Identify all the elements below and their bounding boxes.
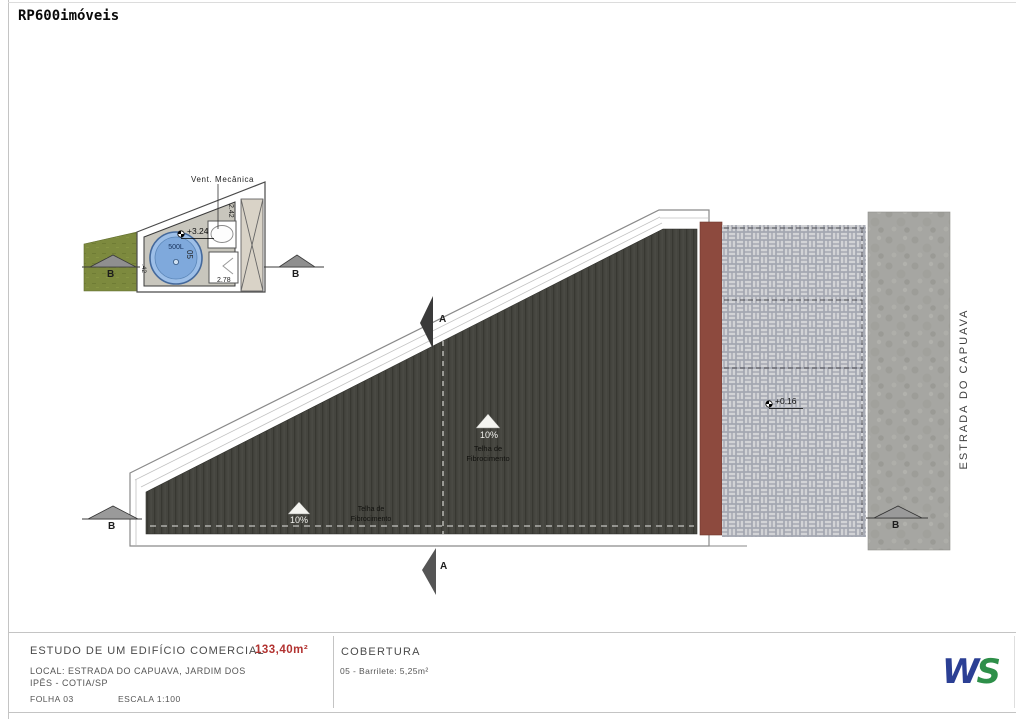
firm-logo-w: W (942, 652, 977, 692)
site-plan-drawing (0, 0, 1024, 719)
water-tank-cap (173, 259, 178, 264)
room-number: 05 (185, 250, 194, 259)
room-schedule: 05 - Barrilete: 5,25m² (340, 666, 429, 676)
section-label-a-top: A (439, 314, 446, 325)
vent-label: Vent. Mecânica (191, 175, 254, 184)
road-area (868, 212, 950, 550)
roof-material-upper-1: Telha de (448, 444, 528, 453)
section-flag-a-bottom (422, 548, 436, 595)
roof-material-lower-1: Telha de (331, 506, 411, 513)
sheet-number: FOLHA 03 (30, 694, 74, 704)
scale-value: ESCALA 1:100 (118, 694, 181, 704)
project-title: ESTUDO DE UM EDIFÍCIO COMERCIAL (30, 645, 265, 657)
level-value-324: +3.24 (187, 226, 209, 236)
vent-fan (211, 226, 233, 243)
slope-percent-lower: 10% (286, 515, 312, 525)
section-label-b-plan-left: B (108, 521, 115, 532)
titleblock-divider-2 (1014, 636, 1015, 708)
titleblock-top-line (8, 632, 1016, 633)
section-arrow-b-right (279, 255, 315, 267)
section-label-b-detail-right: B (292, 269, 299, 280)
drawing-sheet: RP600imóveis (0, 0, 1024, 719)
red-wall-strip (700, 222, 722, 535)
roof-material-lower-2: Fibrocimento (331, 516, 411, 523)
dim-width: 2.78 (217, 277, 231, 284)
total-area-value: 133,40m² (255, 644, 308, 656)
street-name: ESTRADA DO CAPUAVA (958, 304, 970, 474)
firm-logo-s: S (977, 652, 999, 692)
section-label-a-bottom: A (440, 561, 447, 572)
titleblock-bottom-line (8, 712, 1016, 713)
paver-area (722, 225, 866, 537)
titleblock-divider-1 (333, 636, 334, 708)
dim-wall: .42 (140, 264, 147, 273)
level-value-016: +0.16 (775, 396, 797, 406)
section-label-b-detail-left: B (107, 269, 114, 280)
roof-material-upper-2: Fibrocimento (448, 454, 528, 463)
slope-percent-upper: 10% (476, 430, 502, 440)
section-label-b-plan-right: B (892, 520, 899, 531)
firm-logo: WS (942, 652, 998, 692)
location-line-2: IPÊS - COTIA/SP (30, 678, 108, 688)
dim-height: 2.42 (227, 204, 234, 218)
location-line-1: LOCAL: ESTRADA DO CAPUAVA, JARDIM DOS (30, 666, 246, 676)
sheet-title: COBERTURA (341, 646, 421, 658)
